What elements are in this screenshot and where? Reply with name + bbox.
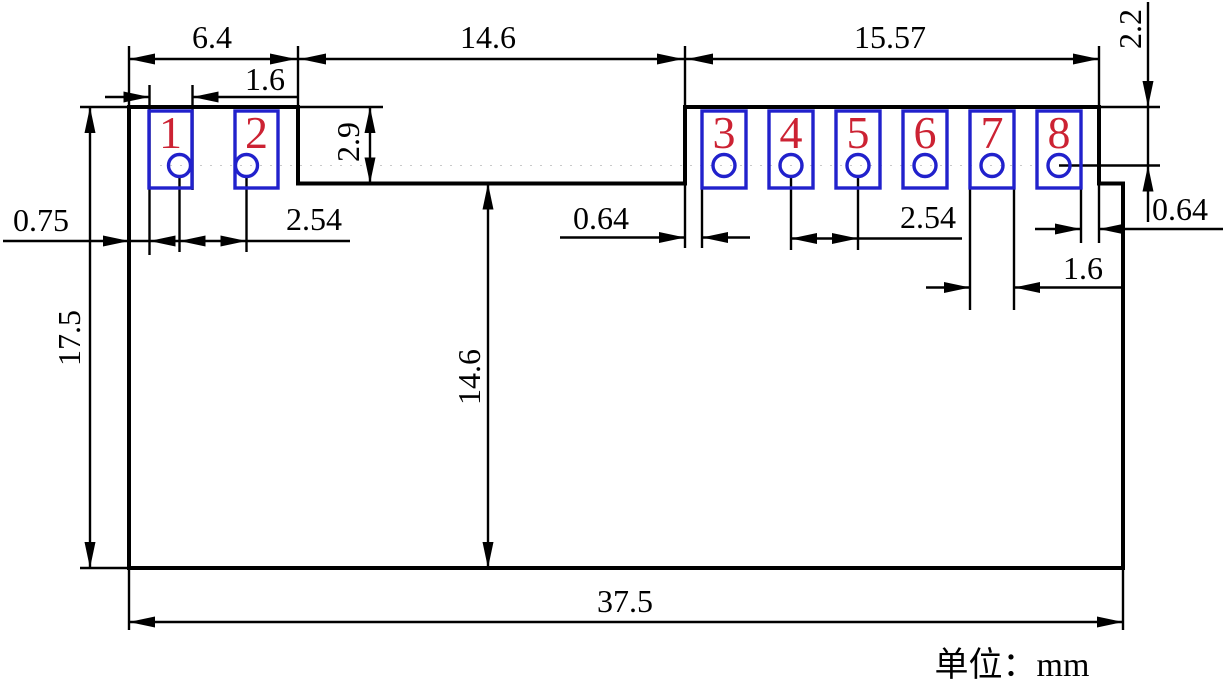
pad-5: 5 [836, 107, 880, 188]
pad-2-number: 2 [245, 107, 268, 158]
pad-4: 4 [769, 107, 813, 188]
dim-label-notch-depth: 14.6 [451, 349, 487, 405]
pads: 1 2 3 4 5 6 7 [149, 107, 1081, 188]
dim-label-left-pitch: 2.54 [286, 201, 342, 237]
dim-label-right-pitch: 2.54 [900, 199, 956, 235]
dim-label-right-block-margin: 0.64 [1152, 191, 1208, 227]
pad-2: 2 [235, 107, 278, 188]
dim-label-board-height: 17.5 [51, 310, 87, 366]
dim-label-right-pad-width: 1.6 [1063, 250, 1103, 286]
dim-label-top-middle-gap: 14.6 [460, 19, 516, 55]
pad-8-number: 8 [1048, 107, 1071, 158]
pad-3-number: 3 [713, 107, 736, 158]
pad-6-number: 6 [914, 107, 937, 158]
pad-7: 7 [970, 107, 1014, 188]
dim-label-left-block-margin: 0.64 [573, 200, 629, 236]
pad-8: 8 [1037, 107, 1081, 188]
pad-6: 6 [903, 107, 947, 188]
dim-label-board-width: 37.5 [597, 583, 653, 619]
dim-label-pad-height: 2.9 [330, 122, 366, 162]
dim-label-left-edge-margin: 0.75 [13, 202, 69, 238]
pad-7-number: 7 [981, 107, 1004, 158]
dim-label-left-pad-width: 1.6 [245, 61, 285, 97]
pad-3: 3 [702, 107, 746, 188]
pad-1-number: 1 [159, 107, 182, 158]
dim-label-top-left-width: 6.4 [192, 19, 232, 55]
pad-5-number: 5 [847, 107, 870, 158]
drawing-svg: 1 2 3 4 5 6 7 [0, 0, 1225, 692]
dimension-drawing: 1 2 3 4 5 6 7 [0, 0, 1225, 692]
pad-4-number: 4 [780, 107, 803, 158]
dimension-lines [3, 2, 1223, 630]
dim-label-top-edge-to-hole: 2.2 [1112, 9, 1148, 49]
unit-note: 单位：mm [935, 646, 1090, 684]
dim-label-top-right-width: 15.57 [854, 19, 926, 55]
pad-1: 1 [149, 107, 192, 188]
